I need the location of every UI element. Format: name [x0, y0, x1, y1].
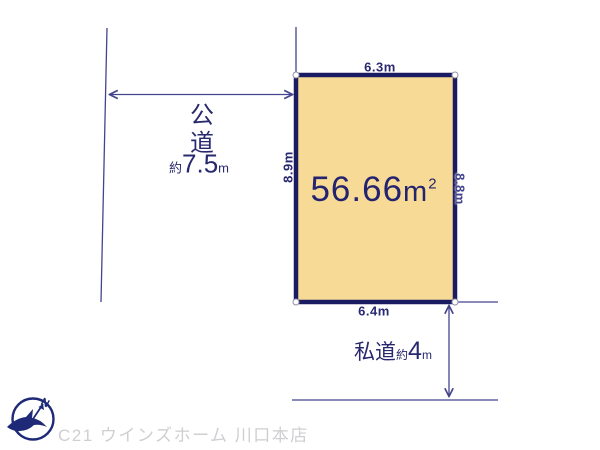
- plot-area-sup: 2: [428, 175, 437, 192]
- land-plot-diagram: N 56.66m2 6.3m 6.4m 8.9m 8.8m 公 道 約7.5m …: [0, 0, 600, 450]
- private-road-name: 私道: [354, 341, 396, 364]
- private-road-approx: 約: [396, 348, 408, 362]
- public-road-approx: 約: [169, 161, 182, 176]
- dimension-top: 6.3m: [364, 60, 396, 75]
- public-road-width: 約7.5m: [169, 149, 229, 180]
- diagram-linework: N: [0, 0, 600, 450]
- plot-corner-marker: [452, 299, 458, 305]
- compass-icon: N: [7, 396, 54, 439]
- dimension-bottom: 6.4m: [358, 304, 390, 319]
- footer-company-name: C21 ウインズホーム 川口本店: [58, 421, 309, 446]
- private-road-width-unit: m: [422, 348, 432, 362]
- plot-area-value: 56.66: [310, 170, 403, 209]
- private-road-width-value: 4: [408, 337, 422, 365]
- plot-corner-marker: [293, 299, 299, 305]
- public-road-width-unit: m: [218, 161, 229, 176]
- boundary-line-left: [101, 28, 107, 302]
- plot-corner-marker: [293, 72, 299, 78]
- public-road-char1: 公: [190, 102, 214, 130]
- public-road-width-value: 7.5: [182, 149, 218, 179]
- private-road-label: 私道約4m: [354, 336, 432, 366]
- plot-area-label: 56.66m2: [310, 170, 437, 210]
- plot-corner-marker: [452, 72, 458, 78]
- dimension-left: 8.9m: [281, 151, 296, 183]
- plot-area-unit: m: [403, 176, 428, 208]
- dimension-right: 8.8m: [453, 173, 468, 205]
